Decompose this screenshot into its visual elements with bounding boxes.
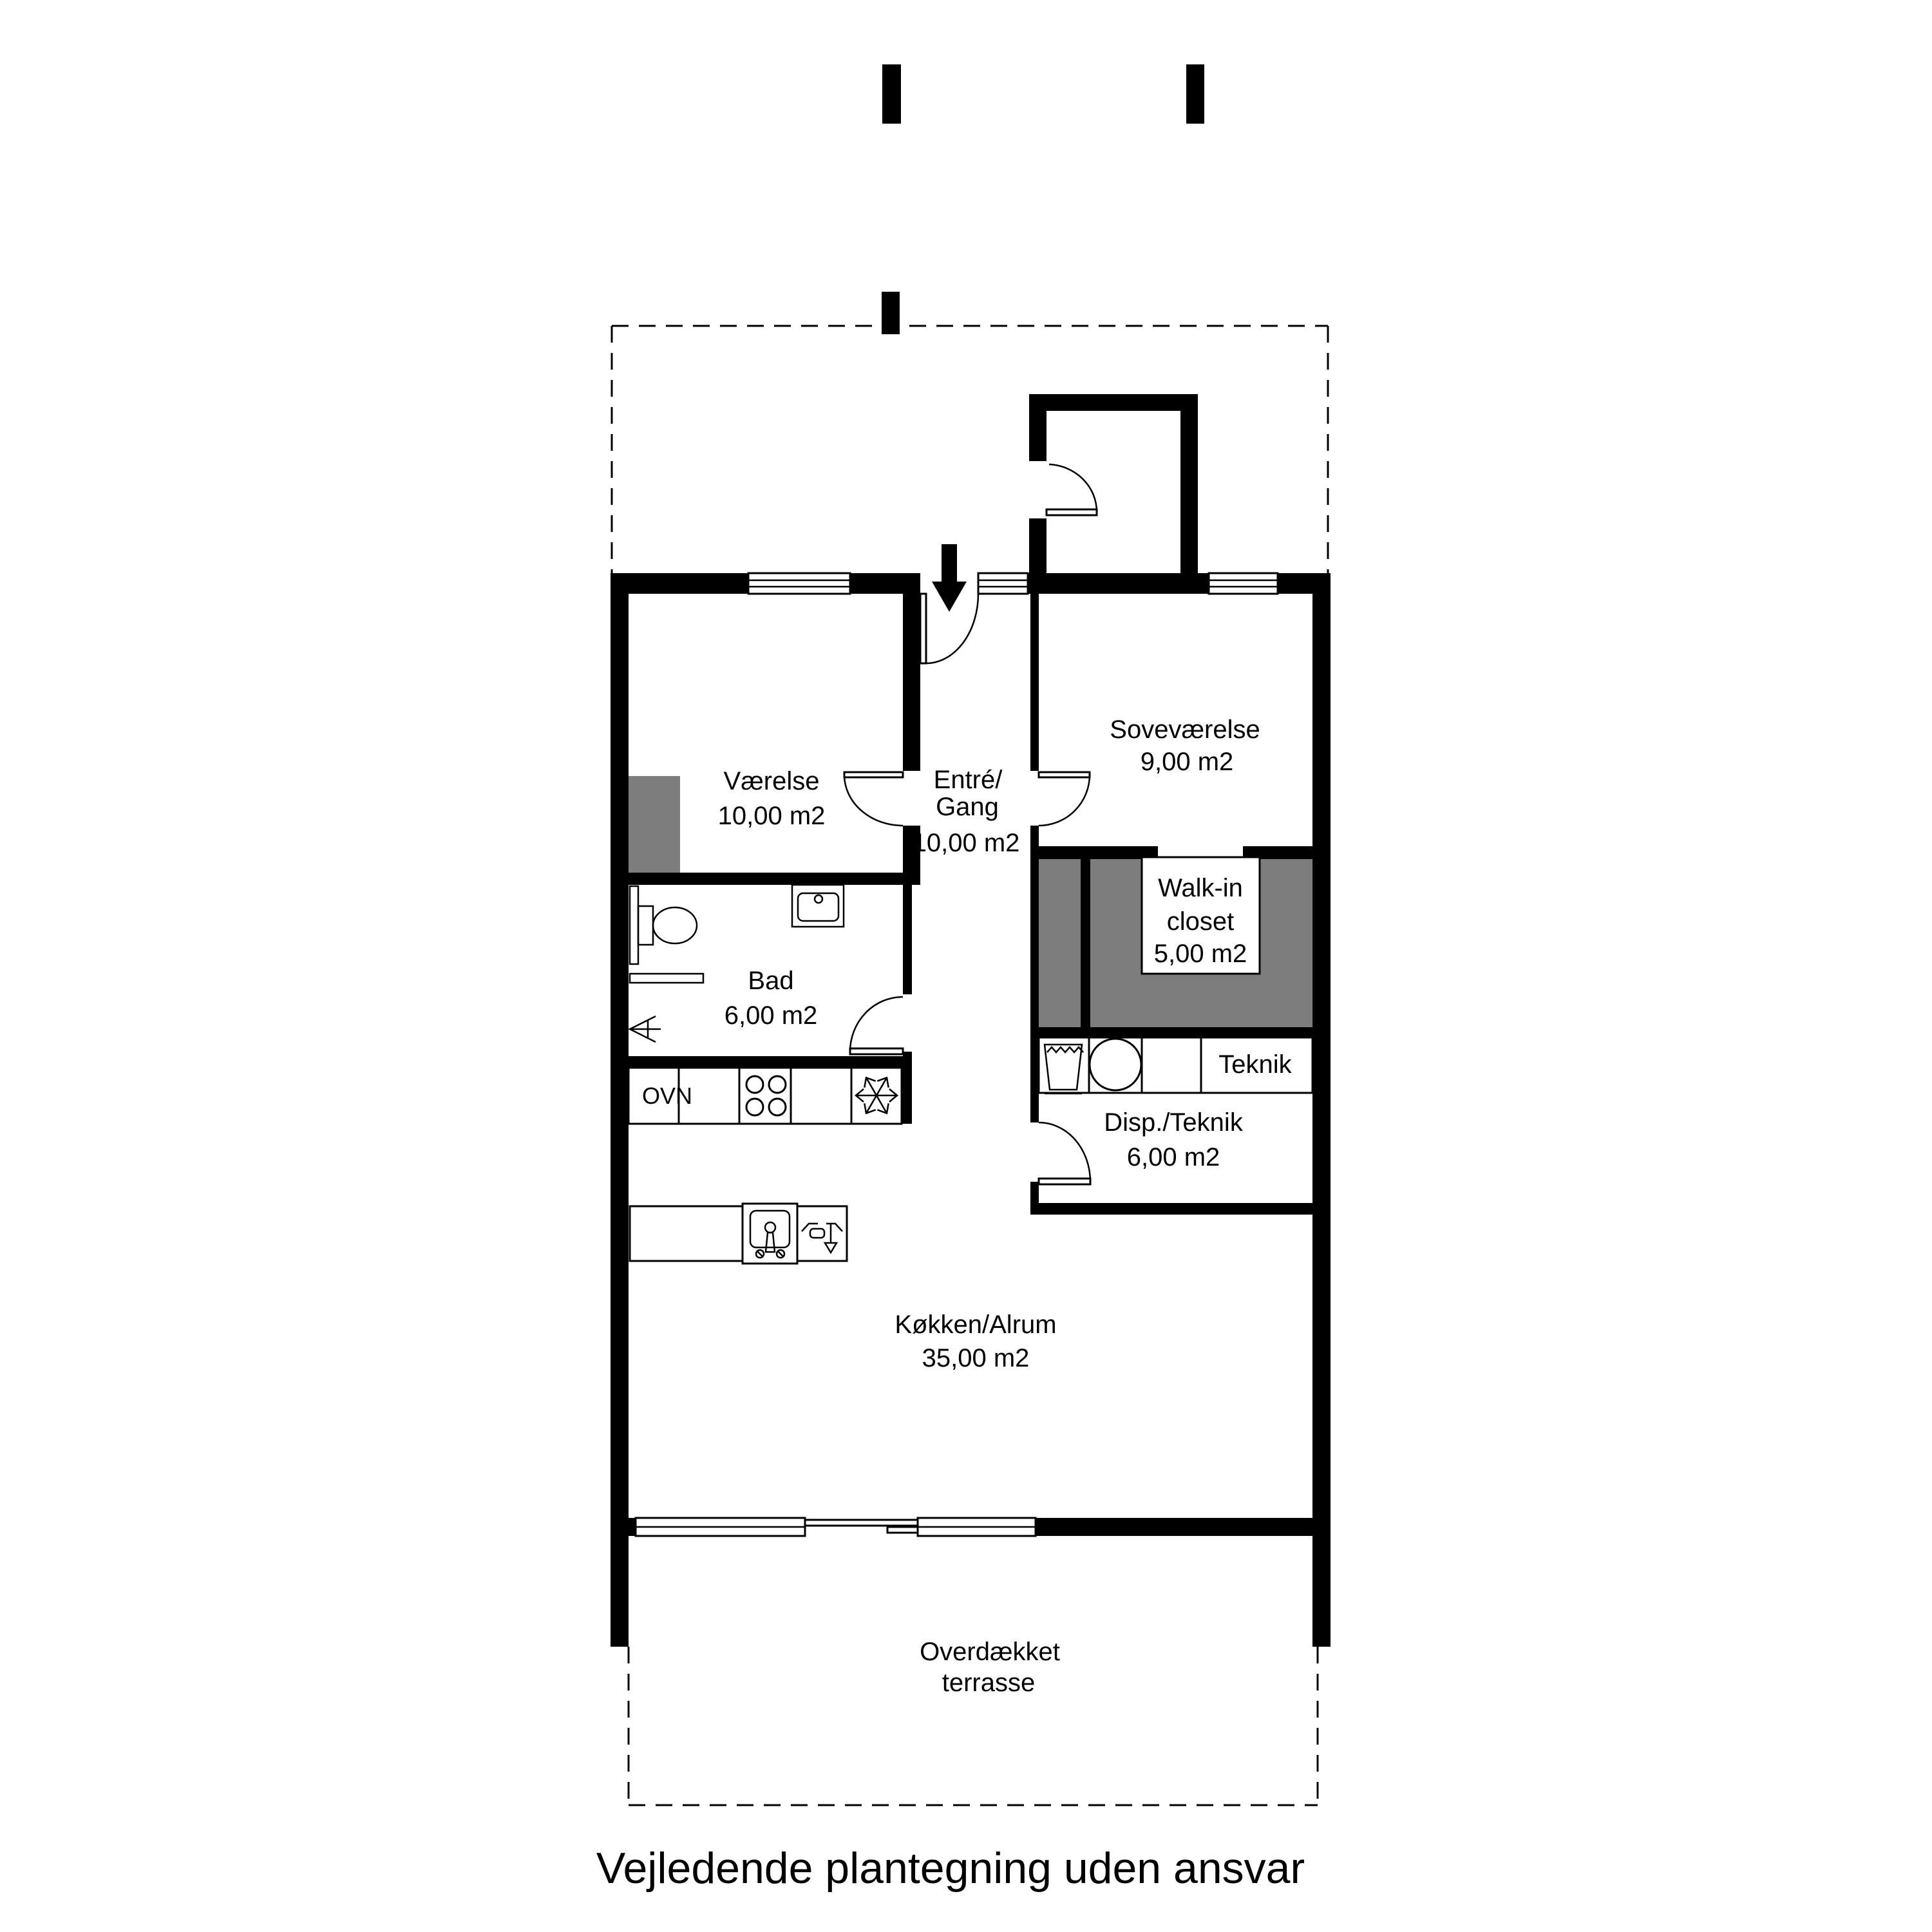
disp-door xyxy=(1039,1122,1090,1184)
floorplan-drawing: Værelse 10,00 m2 Entré/ Gang 10,00 m2 So… xyxy=(0,0,1932,1932)
vaerelse-wardrobe xyxy=(629,776,680,873)
sovevaerelse-label: Soveværelse xyxy=(1110,715,1260,744)
bath-sink-icon xyxy=(792,885,844,927)
oven-label: OVN xyxy=(642,1083,692,1109)
window-vaerelse xyxy=(748,573,850,594)
entrance-arrow-icon xyxy=(932,544,967,612)
post-marker-right xyxy=(1186,64,1204,124)
bath-shelf xyxy=(630,974,703,983)
post-marker-canopy xyxy=(882,292,900,334)
sovevaerelse-area: 9,00 m2 xyxy=(1141,748,1234,776)
entre-area: 10,00 m2 xyxy=(913,829,1020,857)
walkin-label-2: closet xyxy=(1167,907,1235,936)
vestibule-walls xyxy=(1029,394,1198,573)
kokken-label: Køkken/Alrum xyxy=(895,1311,1056,1339)
teknik-label: Teknik xyxy=(1218,1050,1292,1079)
vaerelse-area: 10,00 m2 xyxy=(718,802,826,830)
sovevaerelse-door xyxy=(1039,772,1090,826)
entre-label-2: Gang xyxy=(936,793,999,821)
shower-icon xyxy=(630,1016,661,1042)
kitchen-island xyxy=(630,1204,847,1264)
entre-label-1: Entré/ xyxy=(934,766,1003,794)
bad-area: 6,00 m2 xyxy=(724,1001,818,1030)
floorplan-page: Værelse 10,00 m2 Entré/ Gang 10,00 m2 So… xyxy=(0,0,1932,1932)
door-leaf xyxy=(1046,509,1097,515)
bad-door xyxy=(850,997,903,1054)
sliding-terrace-doors xyxy=(636,1518,1036,1536)
bad-label: Bad xyxy=(748,967,793,995)
door-swing-arc xyxy=(1049,464,1097,512)
post-marker-left xyxy=(882,64,901,124)
vaerelse-door xyxy=(844,772,903,826)
terrasse-label-1: Overdækket xyxy=(920,1638,1060,1666)
closet-wardrobe-left xyxy=(1039,859,1081,1027)
vestibule-door xyxy=(1046,464,1097,515)
door-leaf xyxy=(920,594,926,663)
disclaimer-text: Vejledende plantegning uden ansvar xyxy=(596,1844,1305,1893)
window-sovevaerelse xyxy=(1209,573,1278,594)
disp-label: Disp./Teknik xyxy=(1104,1108,1244,1137)
site-post-markers xyxy=(882,64,1204,334)
vaerelse-label: Værelse xyxy=(724,767,820,795)
canopy-dashed-outline xyxy=(612,326,1328,573)
kokken-area: 35,00 m2 xyxy=(922,1344,1030,1372)
toilet-icon xyxy=(630,886,697,964)
terrasse-label-2: terrasse xyxy=(942,1669,1036,1697)
window-entre xyxy=(978,573,1028,594)
walkin-label-1: Walk-in xyxy=(1158,874,1243,902)
disp-area: 6,00 m2 xyxy=(1127,1143,1220,1171)
walkin-area: 5,00 m2 xyxy=(1154,940,1247,968)
